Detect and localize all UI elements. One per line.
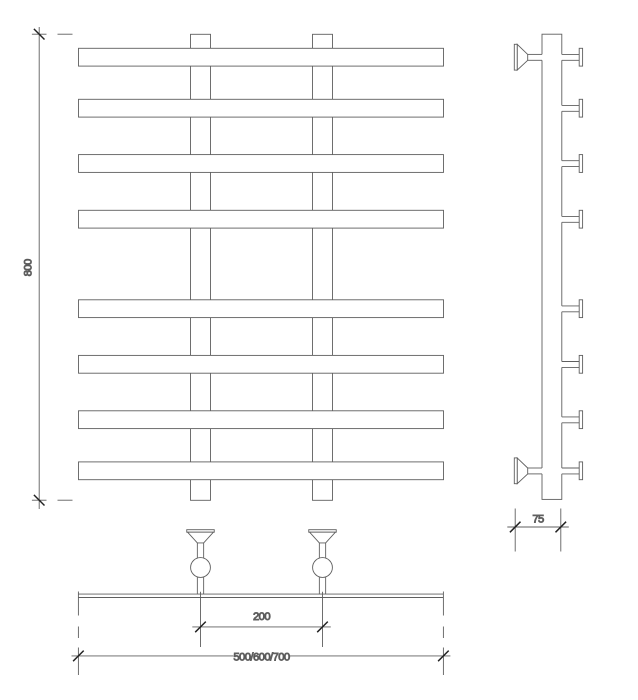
svg-text:800: 800 xyxy=(23,259,35,276)
svg-text:75: 75 xyxy=(532,514,544,526)
svg-text:200: 200 xyxy=(253,611,270,623)
svg-text:500/600/700: 500/600/700 xyxy=(233,652,290,664)
